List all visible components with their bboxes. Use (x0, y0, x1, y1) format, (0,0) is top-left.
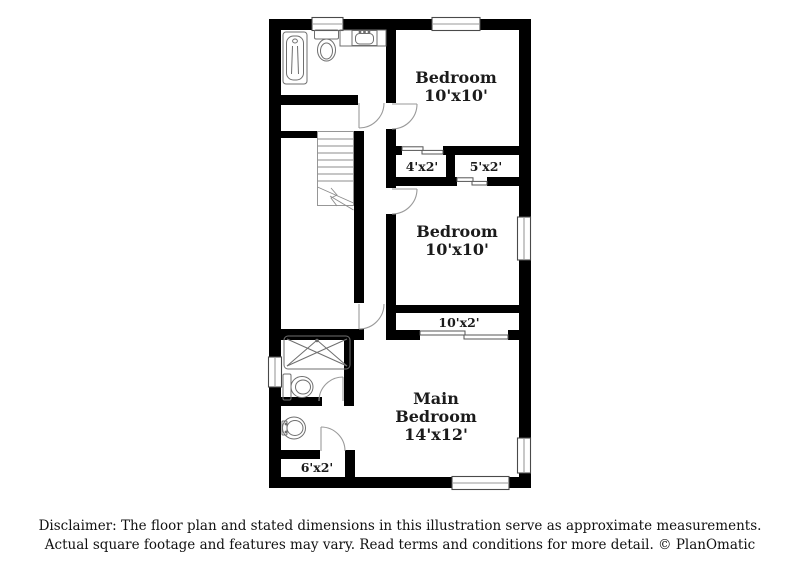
sliding-door (402, 146, 443, 155)
room-label-bedroom-middle-line1: Bedroom (416, 222, 498, 241)
door-arc (319, 377, 343, 401)
wall (344, 340, 354, 406)
door-arc (321, 427, 345, 451)
door-arc (392, 104, 417, 129)
disclaimer-line-1: Disclaimer: The floor plan and stated di… (0, 517, 800, 536)
fixtures (282, 30, 386, 439)
window (432, 18, 480, 31)
wall (386, 30, 396, 103)
wall (281, 450, 320, 459)
shower (284, 336, 350, 369)
door-arc (359, 103, 384, 128)
toilet (315, 30, 339, 61)
closet-label-5x2: 5'x2' (470, 159, 503, 174)
room-label-main-bedroom-line3: 14'x12' (404, 425, 468, 444)
room-label-bedroom-top-line1: Bedroom (415, 68, 497, 87)
closet-label-10x2: 10'x2' (438, 315, 479, 330)
sliding-door (457, 177, 487, 186)
wall (386, 305, 519, 313)
wall (354, 131, 364, 303)
room-labels: Bedroom 10'x10' Bedroom 10'x10' Main Bed… (301, 68, 503, 475)
closet-label-4x2: 4'x2' (406, 159, 439, 174)
room-label-main-bedroom-line2: Bedroom (395, 407, 477, 426)
floor-plan-drawing: Bedroom 10'x10' Bedroom 10'x10' Main Bed… (0, 0, 800, 582)
sliding-door (420, 330, 508, 340)
wall (281, 329, 364, 340)
floor-plan-page: Bedroom 10'x10' Bedroom 10'x10' Main Bed… (0, 0, 800, 582)
wall (281, 131, 317, 138)
window (312, 18, 343, 31)
room-label-bedroom-middle-line2: 10'x10' (425, 240, 489, 259)
window (518, 438, 531, 473)
closet-label-6x2: 6'x2' (301, 460, 334, 475)
disclaimer: Disclaimer: The floor plan and stated di… (0, 517, 800, 555)
wall (386, 177, 519, 186)
disclaimer-line-2: Actual square footage and features may v… (0, 536, 800, 555)
wall (281, 397, 322, 406)
wall (269, 19, 281, 488)
room-label-main-bedroom-line1: Main (413, 389, 459, 408)
pedestal-sink (282, 417, 306, 439)
wall (269, 19, 531, 30)
toilet-lower (283, 374, 313, 400)
room-label-bedroom-top-line2: 10'x10' (424, 86, 488, 105)
staircase (318, 132, 354, 211)
bathtub (283, 32, 307, 84)
vanity-sink (340, 30, 386, 46)
wall (386, 214, 396, 340)
wall (281, 95, 358, 105)
door-arc (359, 304, 384, 329)
window (269, 357, 282, 387)
window (518, 217, 531, 260)
window (452, 477, 509, 490)
door-arc (392, 189, 417, 214)
wall (345, 450, 355, 478)
